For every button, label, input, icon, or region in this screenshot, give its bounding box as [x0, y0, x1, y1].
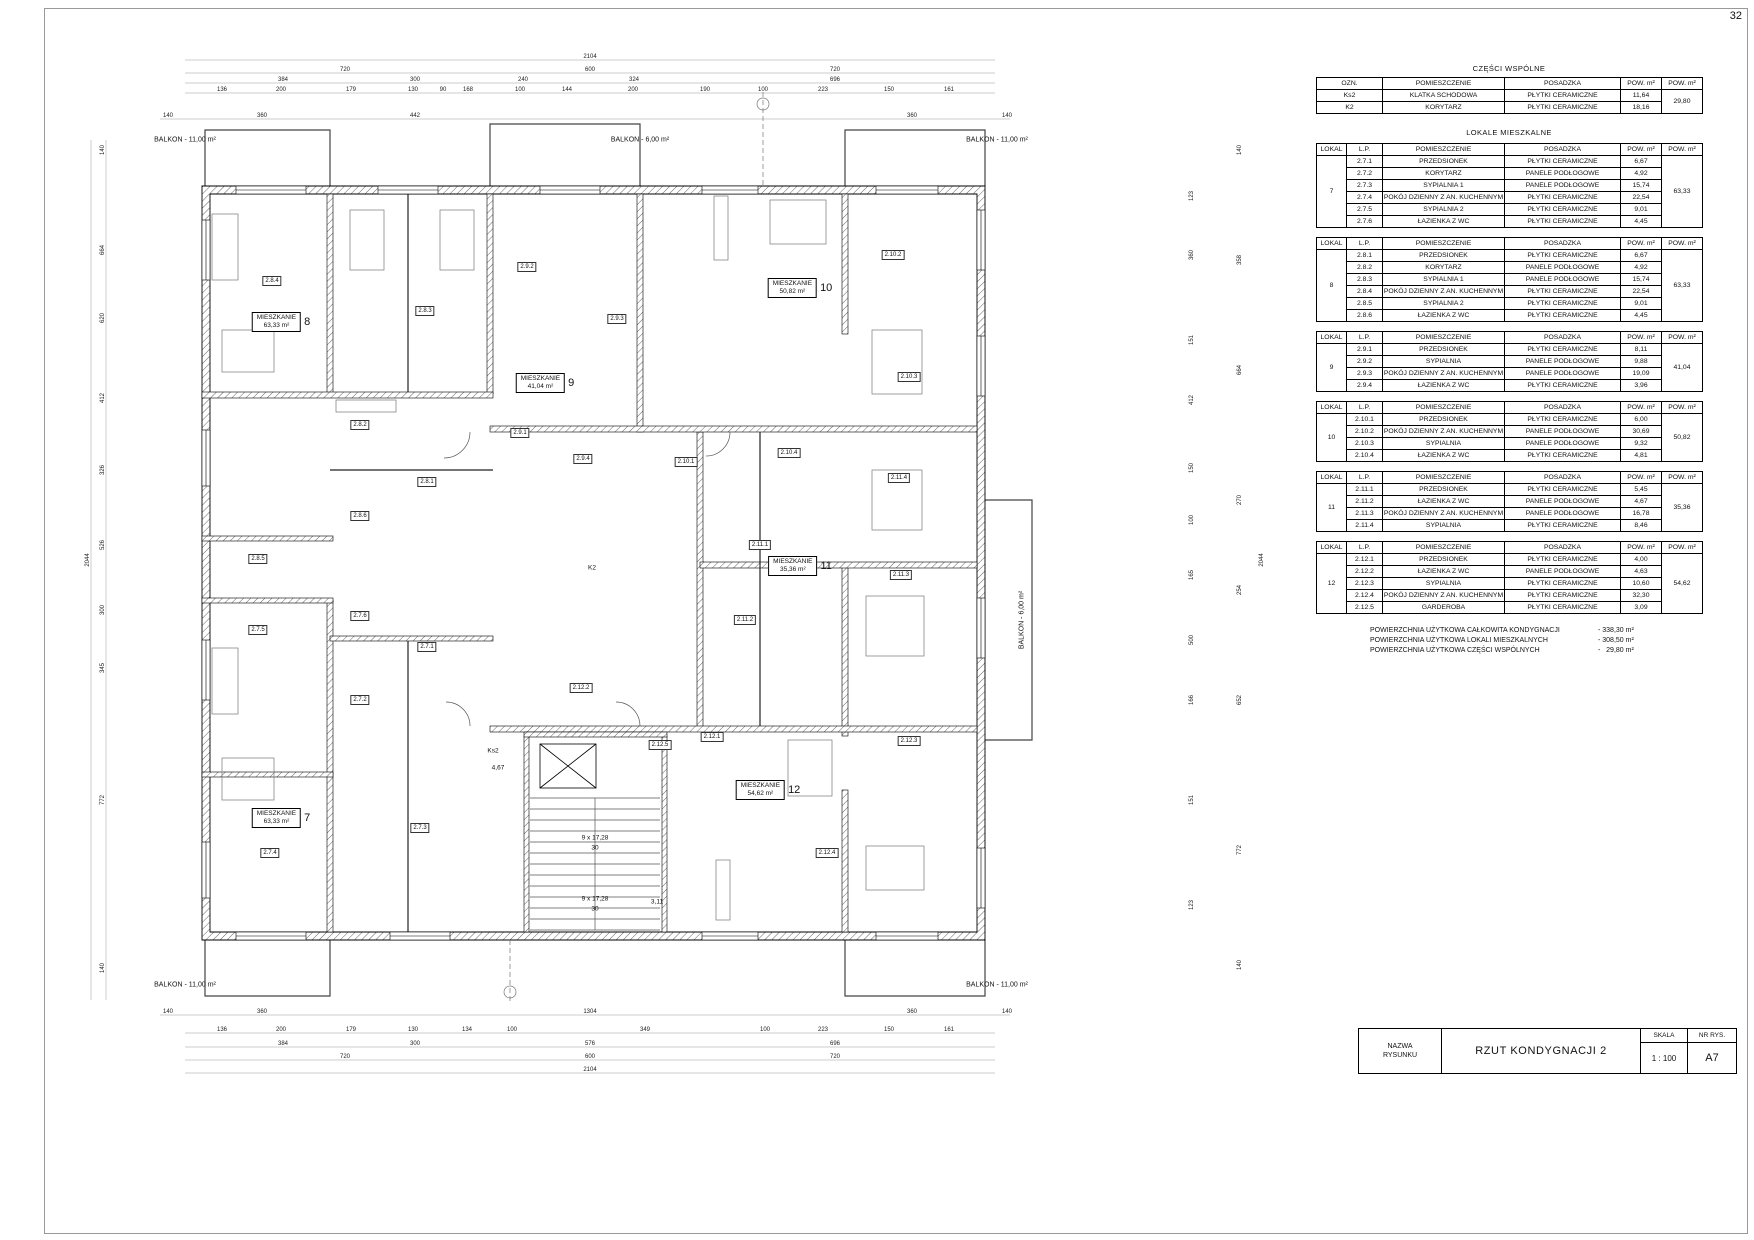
drawing-name-label: NAZWA RYSUNKU [1359, 1029, 1442, 1073]
dimension-label: 576 [585, 1041, 595, 1047]
room-tag: 2.8.3 [415, 306, 434, 316]
cell: PŁYTKI CERAMICZNE [1505, 192, 1621, 204]
dimension-label: 526 [100, 540, 106, 550]
cell: 4,00 [1621, 554, 1662, 566]
lokal-number-cell: 12 [1317, 554, 1347, 614]
dimension-label: 360 [257, 113, 267, 119]
cell: 8,11 [1621, 344, 1662, 356]
title-block: NAZWA RYSUNKU RZUT KONDYGNACJI 2 SKALA 1… [1358, 1028, 1737, 1074]
room-tag: 2.9.4 [573, 454, 592, 464]
legend-panel: CZĘŚCI WSPÓLNE OZN.POMIESZCZENIEPOSADZKA… [1316, 64, 1702, 656]
column-header: POMIESZCZENIE [1383, 402, 1505, 414]
cell: 2.7.5 [1347, 204, 1383, 216]
cell: 2.9.3 [1347, 368, 1383, 380]
dimension-label: 772 [100, 795, 106, 805]
room-tag: 2.7.6 [350, 611, 369, 621]
lokal-total-cell: 54,62 [1662, 554, 1703, 614]
cell: 22,54 [1621, 192, 1662, 204]
lokal-total-cell: 35,36 [1662, 484, 1703, 532]
room-tag: 2.8.2 [350, 420, 369, 430]
cell: 2.11.1 [1347, 484, 1383, 496]
room-tag: 2.11.4 [888, 473, 910, 483]
column-header: L.P. [1347, 144, 1383, 156]
cell: 15,74 [1621, 274, 1662, 286]
apartment-caption: MIESZKANIE [741, 782, 780, 790]
apartment-label: MIESZKANIE50,82 m²10 [768, 278, 833, 298]
column-header: POMIESZCZENIE [1383, 78, 1505, 90]
apartment-box: MIESZKANIE54,62 m² [736, 780, 785, 800]
cell: 30,69 [1621, 426, 1662, 438]
room-tag: 2.7.2 [350, 695, 369, 705]
dimension-label: 200 [276, 87, 286, 93]
cell: PANELE PODŁOGOWE [1505, 262, 1621, 274]
lokal-total-cell: 63,33 [1662, 250, 1703, 322]
apartment-area: 54,62 m² [741, 790, 780, 798]
summary-line: POWIERZCHNIA UŻYTKOWA LOKALI MIESZKALNYC… [1316, 636, 1702, 646]
cell: 2.8.3 [1347, 274, 1383, 286]
room-tag: 2.12.5 [649, 740, 672, 750]
plan-labels: BALKON - 11,00 m²BALKON - 6,00 m²BALKON … [0, 0, 1180, 1240]
cell: GARDEROBA [1383, 602, 1505, 614]
room-tag: 2.9.3 [607, 314, 626, 324]
drawing-sheet: { "page": {"number": "32"}, "tables": { … [0, 0, 1754, 1240]
cell: ŁAZIENKA Z WC [1383, 380, 1505, 392]
drawing-number-label: NR RYS. [1688, 1029, 1736, 1043]
dimension-label: 144 [562, 87, 572, 93]
dimension-label: 223 [818, 1027, 828, 1033]
dimension-label: 140 [1002, 1009, 1012, 1015]
dimension-label: 300 [410, 1041, 420, 1047]
cell: 2.9.1 [1347, 344, 1383, 356]
plan-text: 9 x 17,28 [582, 835, 609, 842]
cell: 9,01 [1621, 204, 1662, 216]
dimension-label: 140 [1237, 145, 1243, 155]
column-header: POW. m² [1621, 238, 1662, 250]
balcony-label: BALKON - 11,00 m² [966, 982, 1028, 989]
dimension-label: 123 [1189, 191, 1195, 201]
cell: 4,45 [1621, 310, 1662, 322]
column-header: OZN. [1317, 78, 1383, 90]
room-tag: 2.9.1 [510, 428, 529, 438]
cell: SYPIALNIA 1 [1383, 274, 1505, 286]
cell: ŁAZIENKA Z WC [1383, 216, 1505, 228]
lokal-total-cell: 50,82 [1662, 414, 1703, 462]
cell: PANELE PODŁOGOWE [1505, 368, 1621, 380]
cell: 4,92 [1621, 262, 1662, 274]
dimension-label: 100 [758, 87, 768, 93]
dimension-label: 600 [585, 1054, 595, 1060]
dimension-label: 664 [1237, 365, 1243, 375]
column-header: POSADZKA [1505, 78, 1621, 90]
dimension-label: 151 [1189, 795, 1195, 805]
cell: PŁYTKI CERAMICZNE [1505, 250, 1621, 262]
cell: 11,64 [1621, 90, 1662, 102]
balcony-label: BALKON - 6,00 m² [1019, 591, 1026, 649]
dimension-label: 696 [830, 77, 840, 83]
table-header-row: LOKALL.P.POMIESZCZENIEPOSADZKAPOW. m²POW… [1317, 144, 1703, 156]
room-tag: 2.12.3 [898, 736, 921, 746]
cell: 2.12.4 [1347, 590, 1383, 602]
dimension-label: 620 [100, 313, 106, 323]
dimension-label: 652 [1237, 695, 1243, 705]
room-tag: 2.8.4 [262, 276, 281, 286]
lokal-number-cell: 7 [1317, 156, 1347, 228]
total-cell: 29,80 [1662, 90, 1703, 114]
dimension-label: 324 [629, 77, 639, 83]
dimension-label: 240 [518, 77, 528, 83]
apartment-area: 50,82 m² [773, 288, 812, 296]
column-header: POW. m² [1662, 144, 1703, 156]
column-header: POMIESZCZENIE [1383, 332, 1505, 344]
lokal-number-cell: 11 [1317, 484, 1347, 532]
column-header: L.P. [1347, 332, 1383, 344]
table-row: 2.12.5GARDEROBAPŁYTKI CERAMICZNE3,09 [1317, 602, 1703, 614]
dimension-label: 360 [257, 1009, 267, 1015]
dimension-label: 200 [276, 1027, 286, 1033]
dimension-label: 161 [944, 87, 954, 93]
common-areas-table: OZN.POMIESZCZENIEPOSADZKAPOW. m²POW. m²K… [1316, 77, 1703, 114]
table-row: 2.7.3SYPIALNIA 1PANELE PODŁOGOWE15,74 [1317, 180, 1703, 192]
cell: 32,30 [1621, 590, 1662, 602]
table-row: 2.7.5SYPIALNIA 2PŁYTKI CERAMICZNE9,01 [1317, 204, 1703, 216]
cell: 2.7.6 [1347, 216, 1383, 228]
table-row: 2.9.3POKÓJ DZIENNY Z AN. KUCHENNYMPANELE… [1317, 368, 1703, 380]
scale-cell: SKALA 1 : 100 [1641, 1029, 1688, 1073]
cell: ŁAZIENKA Z WC [1383, 310, 1505, 322]
cell: 2.12.1 [1347, 554, 1383, 566]
cell: 5,45 [1621, 484, 1662, 496]
column-header: LOKAL [1317, 238, 1347, 250]
apartment-label: MIESZKANIE63,33 m²7 [252, 808, 311, 828]
column-header: POSADZKA [1505, 402, 1621, 414]
cell: PRZEDSIONEK [1383, 344, 1505, 356]
cell: KLATKA SCHODOWA [1383, 90, 1505, 102]
cell: 3,09 [1621, 602, 1662, 614]
table-row: 2.7.2KORYTARZPANELE PODŁOGOWE4,92 [1317, 168, 1703, 180]
cell: 2.12.5 [1347, 602, 1383, 614]
cell: 2.7.3 [1347, 180, 1383, 192]
area-summary: POWIERZCHNIA UŻYTKOWA CAŁKOWITA KONDYGNA… [1316, 626, 1702, 656]
room-tag: 2.10.4 [778, 448, 801, 458]
column-header: POSADZKA [1505, 542, 1621, 554]
cell: 2.10.1 [1347, 414, 1383, 426]
dimension-label: 349 [640, 1027, 650, 1033]
drawing-number-cell: NR RYS. A7 [1688, 1029, 1736, 1073]
dimension-label: 358 [1237, 255, 1243, 265]
summary-label: POWIERZCHNIA UŻYTKOWA LOKALI MIESZKALNYC… [1370, 636, 1598, 646]
column-header: LOKAL [1317, 144, 1347, 156]
cell: PŁYTKI CERAMICZNE [1505, 484, 1621, 496]
room-tag: 2.11.2 [734, 615, 756, 625]
dimension-label: 140 [1002, 113, 1012, 119]
dimension-label: 720 [830, 67, 840, 73]
column-header: POSADZKA [1505, 472, 1621, 484]
cell: PANELE PODŁOGOWE [1505, 168, 1621, 180]
cell: 2.11.4 [1347, 520, 1383, 532]
column-header: L.P. [1347, 238, 1383, 250]
cell: SYPIALNIA [1383, 578, 1505, 590]
cell: 15,74 [1621, 180, 1662, 192]
table-row: 2.7.4POKÓJ DZIENNY Z AN. KUCHENNYMPŁYTKI… [1317, 192, 1703, 204]
apartment-number: 7 [304, 812, 310, 824]
cell: SYPIALNIA [1383, 356, 1505, 368]
cell: POKÓJ DZIENNY Z AN. KUCHENNYM [1383, 426, 1505, 438]
lokal-number-cell: 10 [1317, 414, 1347, 462]
dimension-label: 360 [907, 113, 917, 119]
cell: Ks2 [1317, 90, 1383, 102]
cell: PŁYTKI CERAMICZNE [1505, 286, 1621, 298]
cell: PANELE PODŁOGOWE [1505, 508, 1621, 520]
dimension-label: 150 [1189, 463, 1195, 473]
table-row: 2.12.4POKÓJ DZIENNY Z AN. KUCHENNYMPŁYTK… [1317, 590, 1703, 602]
cell: PŁYTKI CERAMICZNE [1505, 90, 1621, 102]
cell: 8,46 [1621, 520, 1662, 532]
lokal-total-cell: 41,04 [1662, 344, 1703, 392]
cell: PŁYTKI CERAMICZNE [1505, 102, 1621, 114]
dimension-label: 1304 [583, 1009, 596, 1015]
plan-text: 4,67 [492, 765, 505, 772]
summary-value: - 29,80 m² [1598, 646, 1634, 656]
column-header: POW. m² [1662, 238, 1703, 250]
cell: PŁYTKI CERAMICZNE [1505, 156, 1621, 168]
scale-label: SKALA [1641, 1029, 1687, 1043]
dimension-label: 150 [884, 1027, 894, 1033]
table-header-row: LOKALL.P.POMIESZCZENIEPOSADZKAPOW. m²POW… [1317, 472, 1703, 484]
cell: SYPIALNIA 2 [1383, 204, 1505, 216]
apartment-box: MIESZKANIE41,04 m² [516, 373, 565, 393]
table-row: 2.8.6ŁAZIENKA Z WCPŁYTKI CERAMICZNE4,45 [1317, 310, 1703, 322]
cell: 2.7.2 [1347, 168, 1383, 180]
dimension-label: 166 [1189, 695, 1195, 705]
table-row: Ks2KLATKA SCHODOWAPŁYTKI CERAMICZNE11,64… [1317, 90, 1703, 102]
cell: 6,00 [1621, 414, 1662, 426]
apartment-box: MIESZKANIE63,33 m² [252, 312, 301, 332]
table-row: 2.8.3SYPIALNIA 1PANELE PODŁOGOWE15,74 [1317, 274, 1703, 286]
cell: 9,01 [1621, 298, 1662, 310]
table-row: 2.8.4POKÓJ DZIENNY Z AN. KUCHENNYMPŁYTKI… [1317, 286, 1703, 298]
cell: 2.10.4 [1347, 450, 1383, 462]
table-row: 2.9.2SYPIALNIAPANELE PODŁOGOWE9,88 [1317, 356, 1703, 368]
cell: POKÓJ DZIENNY Z AN. KUCHENNYM [1383, 368, 1505, 380]
cell: 2.7.1 [1347, 156, 1383, 168]
table-row: 2.11.4SYPIALNIAPŁYTKI CERAMICZNE8,46 [1317, 520, 1703, 532]
dimension-label: 100 [760, 1027, 770, 1033]
cell: SYPIALNIA 2 [1383, 298, 1505, 310]
apartment-box: MIESZKANIE35,36 m² [768, 556, 817, 576]
dimension-label: 254 [1237, 585, 1243, 595]
cell: PANELE PODŁOGOWE [1505, 180, 1621, 192]
cell: 10,60 [1621, 578, 1662, 590]
column-header: POW. m² [1621, 542, 1662, 554]
cell: PŁYTKI CERAMICZNE [1505, 344, 1621, 356]
column-header: LOKAL [1317, 472, 1347, 484]
cell: SYPIALNIA [1383, 520, 1505, 532]
cell: 4,45 [1621, 216, 1662, 228]
dimension-label: 412 [1189, 395, 1195, 405]
cell: PRZEDSIONEK [1383, 554, 1505, 566]
column-header: POMIESZCZENIE [1383, 238, 1505, 250]
column-header: POSADZKA [1505, 144, 1621, 156]
room-tag: 2.7.5 [248, 625, 267, 635]
cell: PŁYTKI CERAMICZNE [1505, 554, 1621, 566]
cell: 18,16 [1621, 102, 1662, 114]
cell: 6,67 [1621, 250, 1662, 262]
scale-value: 1 : 100 [1641, 1043, 1687, 1073]
cell: PRZEDSIONEK [1383, 484, 1505, 496]
room-tag: 2.12.1 [701, 732, 724, 742]
cell: PŁYTKI CERAMICZNE [1505, 602, 1621, 614]
room-tag: 2.7.3 [410, 823, 429, 833]
cell: 2.8.1 [1347, 250, 1383, 262]
table-header-row: OZN.POMIESZCZENIEPOSADZKAPOW. m²POW. m² [1317, 78, 1703, 90]
summary-line: POWIERZCHNIA UŻYTKOWA CAŁKOWITA KONDYGNA… [1316, 626, 1702, 636]
common-areas-title: CZĘŚCI WSPÓLNE [1316, 64, 1702, 73]
apartment-label: MIESZKANIE35,36 m²11 [768, 556, 832, 576]
page-number: 32 [1730, 10, 1742, 22]
table-row: 2.10.3SYPIALNIAPANELE PODŁOGOWE9,32 [1317, 438, 1703, 450]
column-header: LOKAL [1317, 332, 1347, 344]
table-row: 112.11.1PRZEDSIONEKPŁYTKI CERAMICZNE5,45… [1317, 484, 1703, 496]
room-tag: 2.8.1 [417, 477, 436, 487]
cell: PANELE PODŁOGOWE [1505, 566, 1621, 578]
apartment-label: MIESZKANIE63,33 m²8 [252, 312, 311, 332]
dimension-label: 384 [278, 77, 288, 83]
dimension-label: 90 [440, 87, 447, 93]
room-tag: 2.10.3 [898, 372, 921, 382]
cell: PŁYTKI CERAMICZNE [1505, 204, 1621, 216]
cell: 2.12.2 [1347, 566, 1383, 578]
lokal-number-cell: 9 [1317, 344, 1347, 392]
room-tag: 2.10.1 [675, 457, 698, 467]
cell: PŁYTKI CERAMICZNE [1505, 380, 1621, 392]
table-row: 2.10.2POKÓJ DZIENNY Z AN. KUCHENNYMPANEL… [1317, 426, 1703, 438]
room-tag: 2.8.6 [350, 511, 369, 521]
cell: 4,63 [1621, 566, 1662, 578]
table-header-row: LOKALL.P.POMIESZCZENIEPOSADZKAPOW. m²POW… [1317, 402, 1703, 414]
dimension-label: 2104 [583, 54, 596, 60]
dimension-label: 130 [408, 87, 418, 93]
column-header: POW. m² [1662, 78, 1703, 90]
apartment-area: 35,36 m² [773, 566, 812, 574]
cell: 22,54 [1621, 286, 1662, 298]
table-row: 122.12.1PRZEDSIONEKPŁYTKI CERAMICZNE4,00… [1317, 554, 1703, 566]
drawing-title: RZUT KONDYGNACJI 2 [1442, 1029, 1641, 1073]
column-header: POW. m² [1662, 402, 1703, 414]
dimension-label: 136 [217, 87, 227, 93]
dimension-label: 412 [100, 393, 106, 403]
table-row: 72.7.1PRZEDSIONEKPŁYTKI CERAMICZNE6,6763… [1317, 156, 1703, 168]
balcony-label: BALKON - 11,00 m² [154, 137, 216, 144]
apartment-area: 41,04 m² [521, 383, 560, 391]
room-tag: 2.7.1 [417, 642, 436, 652]
column-header: LOKAL [1317, 542, 1347, 554]
table-row: 2.8.2KORYTARZPANELE PODŁOGOWE4,92 [1317, 262, 1703, 274]
dimension-label: 140 [100, 145, 106, 155]
column-header: POW. m² [1621, 402, 1662, 414]
table-row: 2.8.5SYPIALNIA 2PŁYTKI CERAMICZNE9,01 [1317, 298, 1703, 310]
balcony-label: BALKON - 11,00 m² [154, 982, 216, 989]
dimension-label: 140 [163, 1009, 173, 1015]
cell: K2 [1317, 102, 1383, 114]
summary-label: POWIERZCHNIA UŻYTKOWA CZĘŚCI WSPÓLNYCH [1370, 646, 1598, 656]
table-row: K2KORYTARZPŁYTKI CERAMICZNE18,16 [1317, 102, 1703, 114]
column-header: LOKAL [1317, 402, 1347, 414]
cell: 2.11.3 [1347, 508, 1383, 520]
dimension-label: 326 [100, 465, 106, 475]
plan-text: 9 x 17,28 [582, 896, 609, 903]
cell: PŁYTKI CERAMICZNE [1505, 520, 1621, 532]
summary-label: POWIERZCHNIA UŻYTKOWA CAŁKOWITA KONDYGNA… [1370, 626, 1598, 636]
cell: PANELE PODŁOGOWE [1505, 496, 1621, 508]
dimension-label: 140 [163, 113, 173, 119]
apartment-caption: MIESZKANIE [257, 314, 296, 322]
dimension-label: 123 [1189, 900, 1195, 910]
lokal-table: LOKALL.P.POMIESZCZENIEPOSADZKAPOW. m²POW… [1316, 541, 1703, 614]
room-tag: 2.7.4 [260, 848, 279, 858]
cell: PANELE PODŁOGOWE [1505, 438, 1621, 450]
table-row: 2.12.3SYPIALNIAPŁYTKI CERAMICZNE10,60 [1317, 578, 1703, 590]
table-row: 2.7.6ŁAZIENKA Z WCPŁYTKI CERAMICZNE4,45 [1317, 216, 1703, 228]
lokal-table: LOKALL.P.POMIESZCZENIEPOSADZKAPOW. m²POW… [1316, 143, 1703, 228]
cell: 2.9.4 [1347, 380, 1383, 392]
column-header: POSADZKA [1505, 238, 1621, 250]
apartment-number: 11 [820, 560, 831, 572]
table-row: 2.10.4ŁAZIENKA Z WCPŁYTKI CERAMICZNE4,81 [1317, 450, 1703, 462]
room-tag: 2.10.2 [882, 250, 905, 260]
cell: ŁAZIENKA Z WC [1383, 566, 1505, 578]
cell: 6,67 [1621, 156, 1662, 168]
table-row: 2.11.2ŁAZIENKA Z WCPANELE PODŁOGOWE4,67 [1317, 496, 1703, 508]
dimension-label: 140 [100, 963, 106, 973]
table-row: 92.9.1PRZEDSIONEKPŁYTKI CERAMICZNE8,1141… [1317, 344, 1703, 356]
lokal-number-cell: 8 [1317, 250, 1347, 322]
apartment-caption: MIESZKANIE [257, 810, 296, 818]
apartment-area: 63,33 m² [257, 818, 296, 826]
lokal-table: LOKALL.P.POMIESZCZENIEPOSADZKAPOW. m²POW… [1316, 331, 1703, 392]
dimension-label: 300 [410, 77, 420, 83]
dimension-label: 664 [100, 245, 106, 255]
summary-value: - 338,30 m² [1598, 626, 1634, 636]
cell: PŁYTKI CERAMICZNE [1505, 216, 1621, 228]
dimension-label: 720 [340, 1054, 350, 1060]
room-tag: 2.12.4 [816, 848, 839, 858]
apartment-number: 12 [788, 784, 800, 796]
cell: KORYTARZ [1383, 168, 1505, 180]
dimension-label: 179 [346, 1027, 356, 1033]
balcony-label: BALKON - 11,00 m² [966, 137, 1028, 144]
dimension-label: 100 [1189, 515, 1195, 525]
column-header: POW. m² [1621, 78, 1662, 90]
table-row: 102.10.1PRZEDSIONEKPŁYTKI CERAMICZNE6,00… [1317, 414, 1703, 426]
lokale-title: LOKALE MIESZKALNE [1316, 128, 1702, 137]
apartment-area: 63,33 m² [257, 322, 296, 330]
lokale-tables: LOKALL.P.POMIESZCZENIEPOSADZKAPOW. m²POW… [1316, 143, 1702, 614]
plan-text: K2 [588, 565, 596, 572]
dimension-label: 130 [408, 1027, 418, 1033]
cell: POKÓJ DZIENNY Z AN. KUCHENNYM [1383, 192, 1505, 204]
cell: POKÓJ DZIENNY Z AN. KUCHENNYM [1383, 286, 1505, 298]
dimension-label: 360 [907, 1009, 917, 1015]
cell: 2.8.2 [1347, 262, 1383, 274]
column-header: POW. m² [1621, 144, 1662, 156]
cell: 16,78 [1621, 508, 1662, 520]
dimension-label: 696 [830, 1041, 840, 1047]
apartment-number: 10 [820, 282, 832, 294]
summary-value: - 308,50 m² [1598, 636, 1634, 646]
dimension-label: 165 [1189, 570, 1195, 580]
cell: PRZEDSIONEK [1383, 250, 1505, 262]
cell: SYPIALNIA 1 [1383, 180, 1505, 192]
